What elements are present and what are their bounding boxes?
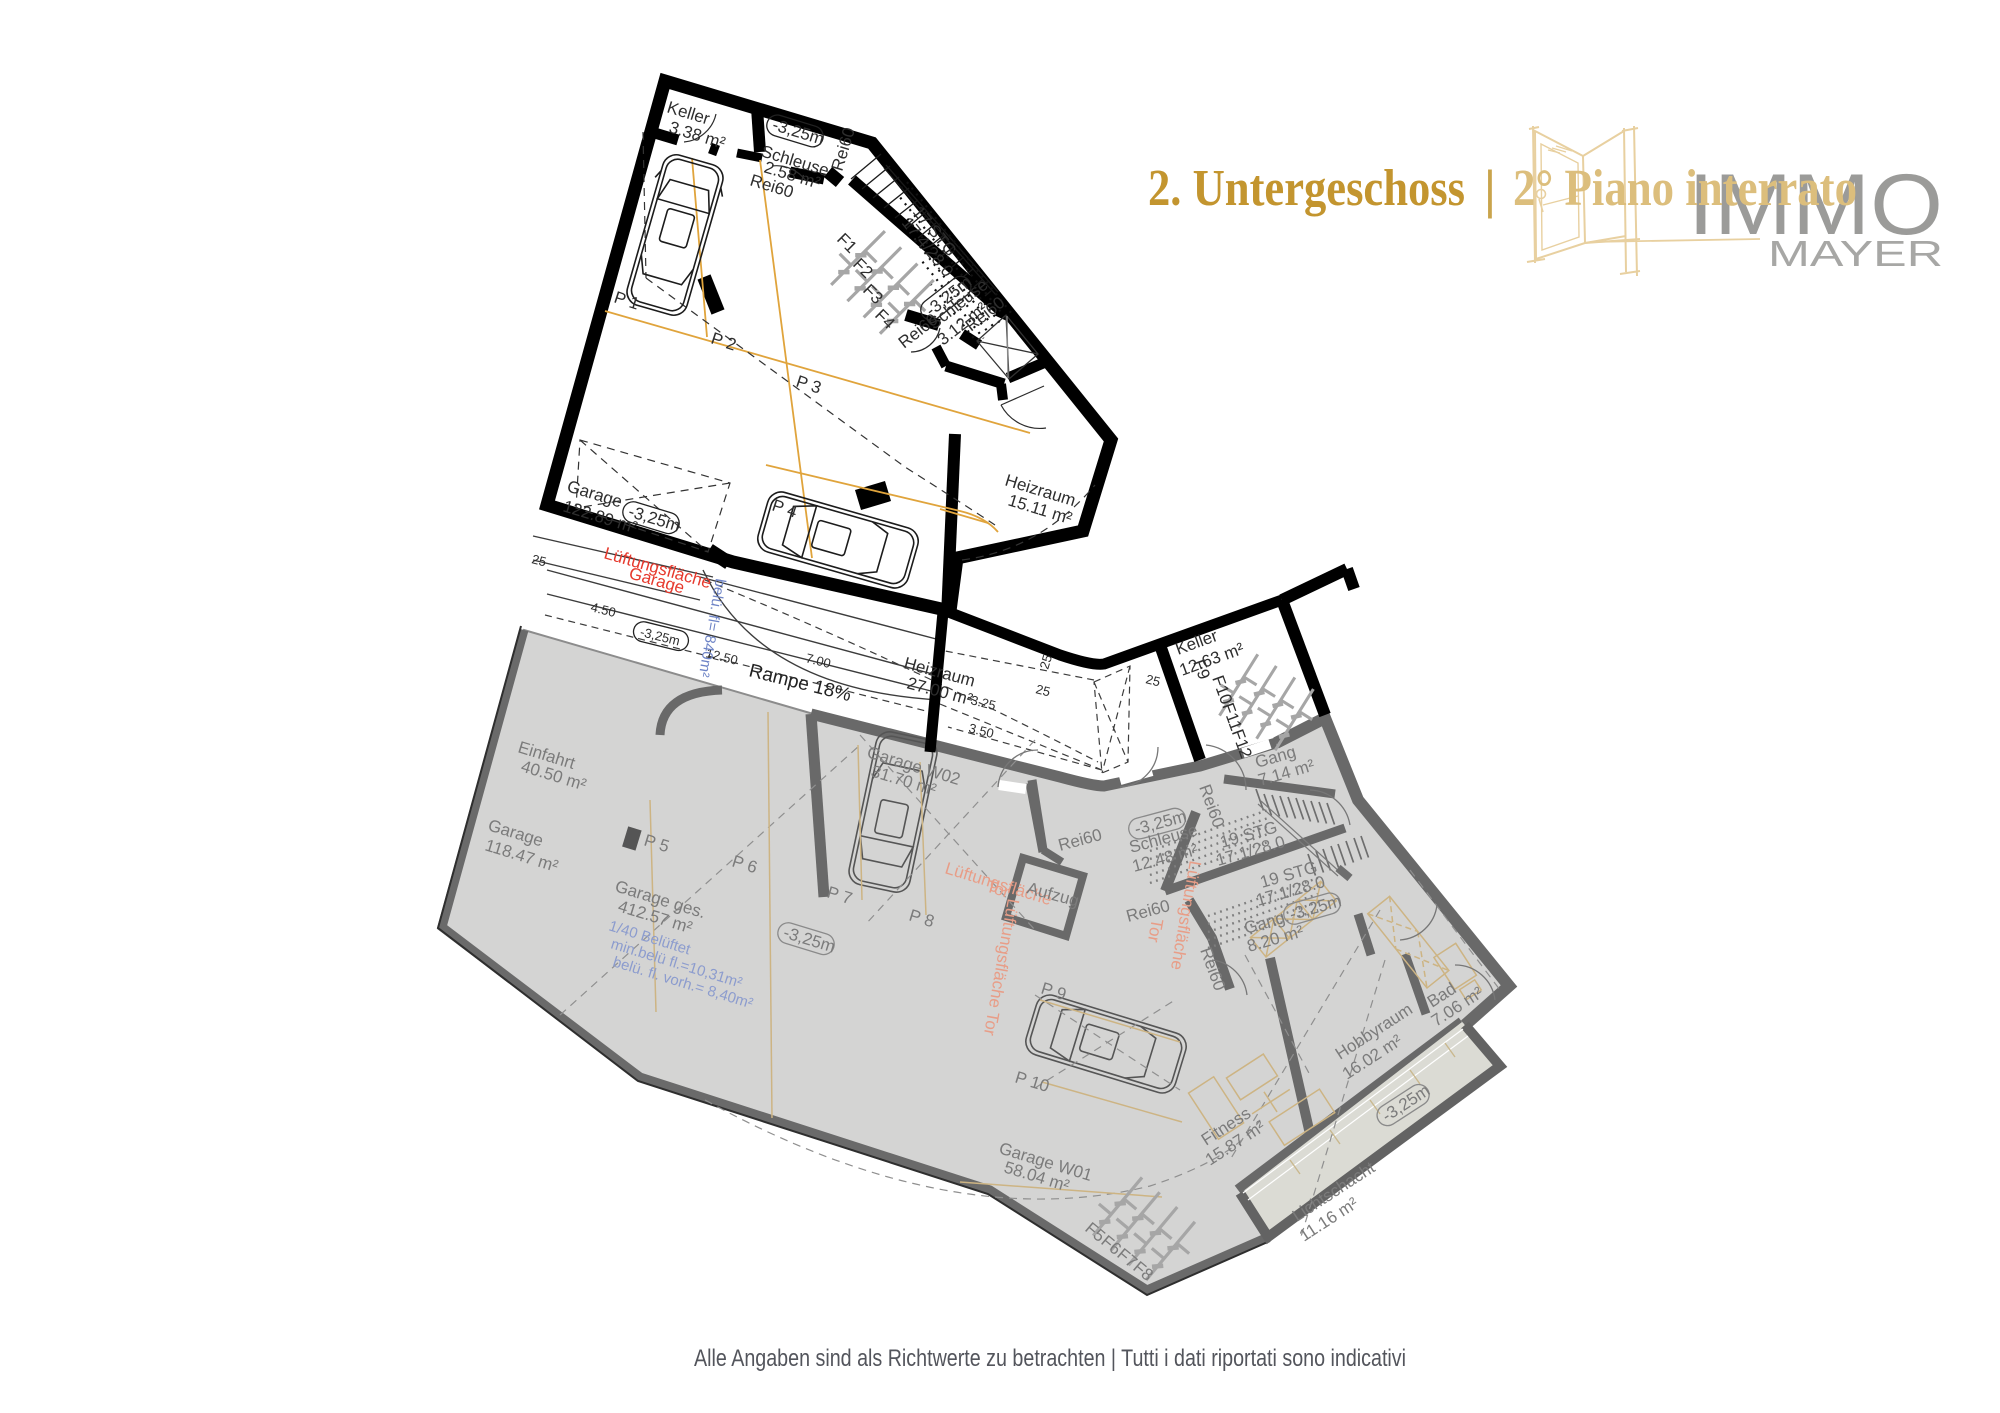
svg-text:Alle Angaben sind als Richtwer: Alle Angaben sind als Richtwerte zu betr…	[694, 1345, 1406, 1372]
svg-text:|: |	[1484, 159, 1496, 219]
svg-text:MAYER: MAYER	[1768, 233, 1943, 274]
svg-text:2. Untergeschoss: 2. Untergeschoss	[1148, 160, 1465, 217]
svg-text:2° Piano interrato: 2° Piano interrato	[1513, 160, 1857, 217]
